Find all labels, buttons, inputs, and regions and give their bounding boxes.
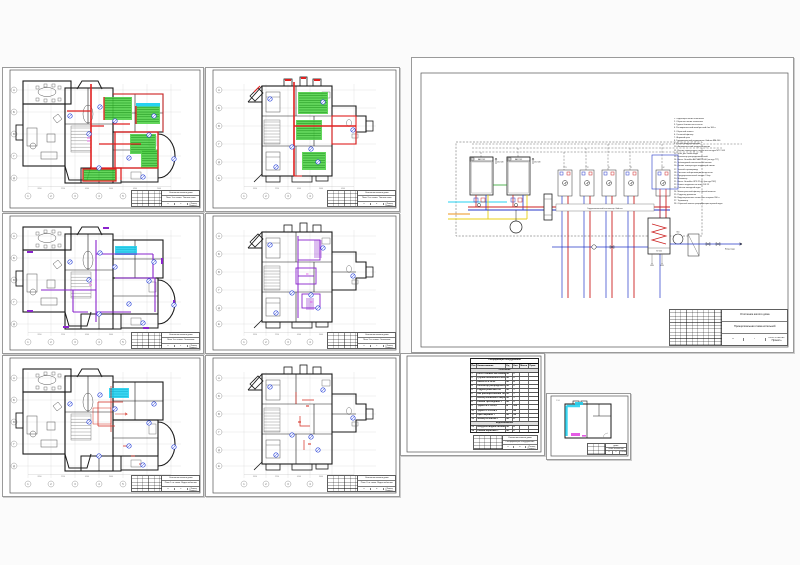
organization: ООО «Тепло-Проект»: [384, 487, 396, 491]
svg-text:3950: 3950: [37, 334, 41, 336]
stairs: [71, 414, 91, 440]
spec-cell: [529, 418, 538, 421]
walls: [16, 369, 175, 471]
spec-cell: 1: [513, 397, 520, 400]
sheet-number: 7: [744, 338, 766, 341]
svg-text:2250: 2250: [275, 188, 279, 190]
stairs: [71, 126, 91, 152]
spec-cell: 6: [513, 418, 520, 421]
stage: П: [162, 488, 175, 490]
svg-text:23,8 кВт: 23,8 кВт: [534, 162, 541, 164]
spec-cell: шт: [506, 426, 513, 429]
stage: П: [358, 203, 371, 205]
title-block: Отопление жилого домаПринципиальная схем…: [669, 309, 788, 346]
svg-text:Ввод воды: Ввод воды: [725, 249, 735, 251]
spec-cell: [529, 377, 538, 380]
svg-text:80л: 80л: [676, 232, 679, 234]
water-zone: [109, 388, 129, 398]
svg-text:3000: 3000: [109, 476, 113, 478]
stage: П: [503, 446, 515, 448]
spec-cell: 560: [513, 405, 520, 408]
svg-text:2250: 2250: [61, 334, 65, 336]
sheet-plan-2-underfloor[interactable]: 123456АБВГДЕ39502250450030004300Отоплени…: [205, 67, 400, 212]
spec-cell: [520, 377, 529, 380]
spec-cell: [520, 414, 529, 417]
spec-cell: [529, 405, 538, 408]
spec-cell: шт: [506, 430, 513, 433]
spec-cell: [520, 397, 529, 400]
axis-bubbles: 123456АБВГДЕ: [216, 87, 357, 199]
expansion-tank: [510, 210, 522, 233]
svg-text:1:50: 1:50: [556, 400, 561, 402]
spec-cell: шт: [506, 414, 513, 417]
organization: ООО «Тепло-Проект»: [526, 445, 537, 449]
svg-text:ГВС: ГВС: [661, 167, 665, 169]
spec-cell: Коллектор распределительный: [477, 385, 506, 388]
sheet-number: 8: [514, 446, 526, 448]
title-block: Отопление жилого домаПлан 2-го этажа. Тё…: [327, 190, 396, 207]
spec-cell: [529, 397, 538, 400]
spec-cell: Труба PP-R 25×4,2: [477, 410, 506, 413]
svg-text:4500: 4500: [85, 476, 89, 478]
spec-cell: [520, 385, 529, 388]
svg-text:2250: 2250: [61, 476, 65, 478]
title-block: Отопление жилого домаПлан 2-го этажа. От…: [327, 332, 396, 349]
spec-cell: Насос UPS 25-60: [477, 381, 506, 384]
svg-text:Р1: Р1: [608, 167, 610, 169]
svg-text:3950: 3950: [253, 334, 257, 336]
spec-cell: [529, 401, 538, 404]
svg-text:4500: 4500: [297, 334, 301, 336]
spec-cell: 84: [513, 410, 520, 413]
svg-text:Д: Д: [218, 161, 220, 164]
spec-cell: Клапан обратный 1": [477, 430, 506, 433]
spec-cell: Котёл газовый настенный 24 кВт: [477, 373, 506, 376]
equipment-markers: [268, 385, 355, 457]
organization: ООО «Тепло-Проект»: [188, 487, 200, 491]
hot-water-highlight: [571, 433, 586, 437]
sheet-plan-1-radiators[interactable]: 1234567АБВГД395022504500300043002400Отоп…: [2, 213, 204, 354]
axis-bubbles: 123456АБВГДЕ: [216, 233, 357, 345]
svg-text:Д: Д: [13, 177, 15, 180]
spec-cell: [529, 393, 538, 396]
stairs: [264, 120, 280, 144]
spec-cell: Группа безопасности котла: [477, 377, 506, 380]
spec-cell: Прим.: [529, 364, 538, 368]
spec-cell: Гидрострелка BM-100: [477, 389, 506, 392]
spec-cell: Масса: [520, 364, 529, 368]
spec-cell: шт: [506, 385, 513, 388]
svg-text:3950: 3950: [253, 476, 257, 478]
cad-canvas: { "page": {"background": "#fbfbfb"}, "co…: [0, 0, 800, 565]
svg-text:3000: 3000: [319, 188, 323, 190]
svg-text:4500: 4500: [85, 188, 89, 190]
title-block-grid: [132, 333, 162, 348]
title-block-grid: [328, 476, 358, 491]
spec-cell: 2: [513, 377, 520, 380]
svg-text:BAXI 24F: BAXI 24F: [515, 158, 522, 161]
svg-text:3000: 3000: [109, 188, 113, 190]
spec-cell: 5: [513, 401, 520, 404]
water-piping: [296, 392, 314, 450]
spec-cell: [529, 426, 538, 429]
legend-item: 28. Обратный клапан рециркуляции горячей…: [674, 203, 786, 206]
sheet-boiler-room-plan[interactable]: 1:50Отопление жилого домаПлан котельнойП…: [546, 393, 631, 460]
svg-text:SV 200: SV 200: [656, 250, 662, 252]
spec-cell: [520, 405, 529, 408]
spec-cell: Кран шаровой 1": [477, 414, 506, 417]
spec-cell: 24: [513, 414, 520, 417]
svg-text:4500: 4500: [297, 188, 301, 190]
organization: ООО «Тепло-Проект»: [188, 202, 200, 206]
stage: П: [358, 488, 371, 490]
separator-label: Гидравлический коллектор Gidruss: [556, 204, 654, 211]
svg-text:2250: 2250: [61, 188, 65, 190]
axis-grid: [222, 372, 376, 478]
spec-cell: [529, 373, 538, 376]
stairs: [71, 272, 91, 298]
svg-text:ТП1: ТП1: [563, 167, 566, 169]
spec-cell: шт: [506, 373, 513, 376]
spec-cell: м: [506, 410, 513, 413]
axis-grid: [222, 230, 376, 336]
svg-text:4500: 4500: [85, 334, 89, 336]
spec-cell: шт: [506, 389, 513, 392]
svg-text:3950: 3950: [37, 188, 41, 190]
title-block-grid: [132, 191, 162, 206]
title-block: Отопление жилого домаПлан 2-го этажа. Во…: [327, 475, 396, 492]
svg-text:3000: 3000: [109, 334, 113, 336]
spec-cell: Ед.: [506, 364, 513, 368]
spec-cell: Бойлер косвенного нагрева 200 л: [477, 397, 506, 400]
stairs: [264, 266, 280, 290]
svg-text:Р2: Р2: [630, 167, 632, 169]
stage: П: [162, 203, 175, 205]
organization: ООО «Тепло-Проект»: [188, 344, 200, 348]
svg-text:2250: 2250: [275, 334, 279, 336]
svg-text:4500: 4500: [297, 476, 301, 478]
spec-cell: шт: [506, 418, 513, 421]
spec-cell: Бак расширительный 100 л: [477, 393, 506, 396]
spec-cell: [520, 430, 529, 433]
svg-text:Гидравлический коллектор Gidru: Гидравлический коллектор Gidruss: [587, 207, 623, 210]
svg-text:Д: Д: [13, 465, 15, 468]
sheet-frame: [213, 358, 396, 493]
spec-cell: 4: [513, 381, 520, 384]
sheet-plan-1-underfloor[interactable]: 1234567АБВГД395022504500300043002400Отоп…: [2, 67, 204, 212]
spec-cell: шт: [506, 377, 513, 380]
spec-cell: м: [506, 405, 513, 408]
spec-cell: 6: [513, 430, 520, 433]
title-block: Отопление жилого домаПлан 1-го этажа. Тё…: [131, 190, 200, 207]
sheet-number: 1: [175, 345, 188, 347]
stage: П: [162, 345, 175, 347]
spec-cell: Труба PE-X 16×2,0: [477, 405, 506, 408]
svg-text:3950: 3950: [253, 188, 257, 190]
scale-note: 1:50: [556, 400, 561, 402]
boilers: BAXI 24F23,8 кВтBAXI 24F23,8 кВт: [470, 157, 541, 195]
sheet-plan-1-water[interactable]: 1234567АБВГД395022504500300043002400Отоп…: [2, 355, 204, 497]
schematic-legend: 1. Подающая линия отопления2. Обратная л…: [674, 118, 786, 206]
spec-cell: Кол.: [513, 364, 520, 368]
spec-cell: [520, 381, 529, 384]
title-block: Отопление жилого домаПлан котельнойП9ООО…: [587, 443, 627, 455]
svg-text:Д: Д: [218, 307, 220, 310]
svg-text:ТП2: ТП2: [585, 167, 588, 169]
spec-cell: [529, 410, 538, 413]
svg-text:Д: Д: [218, 449, 220, 452]
spec-cell: шт: [506, 401, 513, 404]
spec-cell: шт: [506, 397, 513, 400]
sheet-number: 4: [371, 203, 384, 205]
spec-cell: [520, 410, 529, 413]
organization: ООО «Тепло-Проект»: [766, 337, 787, 343]
sheet-number: 9: [613, 451, 620, 453]
spec-cell: [520, 373, 529, 376]
sheet-specification[interactable]: Спецификация оборудованияПоз.Наименовани…: [400, 353, 545, 456]
spec-cell: Фильтр сетчатый 1": [477, 418, 506, 421]
spec-cell: [520, 418, 529, 421]
spec-cell: [529, 389, 538, 392]
hydraulic-separator: [544, 194, 552, 220]
sheet-plan-2-water[interactable]: 123456АБВГДЕ39502250450030004300Отоплени…: [205, 355, 400, 497]
svg-text:Д: Д: [13, 323, 15, 326]
stairs: [264, 408, 280, 432]
stage: П: [722, 338, 744, 341]
spec-cell: Наименование: [477, 364, 506, 368]
organization: ООО «Тепло-Проект»: [620, 451, 626, 454]
title-block: Отопление жилого домаСпецификация оборуд…: [473, 435, 538, 450]
title-block: Отопление жилого домаПлан 1-го этажа. Во…: [131, 475, 200, 492]
spec-cell: [520, 393, 529, 396]
stage: П: [358, 345, 371, 347]
svg-text:23,8 кВт: 23,8 кВт: [497, 162, 504, 164]
sheet-number: 5: [175, 488, 188, 490]
title-block: Отопление жилого домаПлан 1-го этажа. От…: [131, 332, 200, 349]
spec-cell: 8: [513, 426, 520, 429]
spec-cell: [529, 381, 538, 384]
spec-cell: шт: [506, 381, 513, 384]
svg-text:3950: 3950: [37, 476, 41, 478]
title-block-grid: [328, 333, 358, 348]
spec-cell: 2: [513, 373, 520, 376]
spec-cell: [520, 426, 529, 429]
spec-cell: Клапан трёхходовой 1": [477, 401, 506, 404]
svg-text:BAXI 24F: BAXI 24F: [478, 158, 485, 161]
spec-cell: [520, 401, 529, 404]
svg-text:2250: 2250: [275, 476, 279, 478]
sheet-title: Принципиальная схема котельной: [722, 322, 787, 334]
spec-cell: Воздухоотводчик автоматич.: [477, 426, 506, 429]
svg-text:3000: 3000: [319, 476, 323, 478]
specification-table: Спецификация оборудованияПоз.Наименовани…: [470, 358, 539, 433]
title-block-grid: [474, 436, 503, 449]
spec-cell: 1: [513, 393, 520, 396]
spec-cell: [529, 385, 538, 388]
title-block-grid: [132, 476, 162, 491]
sheet-number: 3: [175, 203, 188, 205]
sheet-number: 6: [371, 488, 384, 490]
sheet-plan-2-radiators[interactable]: 123456АБВГДЕ39502250450030004300Отоплени…: [205, 213, 400, 354]
cold-water-highlight: [567, 402, 584, 436]
spec-cell: [529, 430, 538, 433]
title-block-grid: [588, 444, 606, 454]
svg-text:3000: 3000: [319, 334, 323, 336]
axis-bubbles: 123456АБВГДЕ: [216, 375, 357, 487]
stage: П: [606, 451, 613, 453]
spec-row: 14Клапан обратный 1"шт6: [471, 430, 538, 433]
sheet-number: 2: [371, 345, 384, 347]
title-block-grid: [670, 310, 722, 345]
spec-cell: шт: [506, 393, 513, 396]
spec-cell: 2: [513, 385, 520, 388]
title-block-grid: [328, 191, 358, 206]
spec-cell: 1: [513, 389, 520, 392]
sheet-boiler-schematic[interactable]: BAXI 24F23,8 кВтBAXI 24F23,8 кВтТП1ТП2Р1…: [411, 57, 794, 353]
spec-cell: [520, 389, 529, 392]
organization: ООО «Тепло-Проект»: [384, 344, 396, 348]
spec-cell: [529, 414, 538, 417]
organization: ООО «Тепло-Проект»: [384, 202, 396, 206]
